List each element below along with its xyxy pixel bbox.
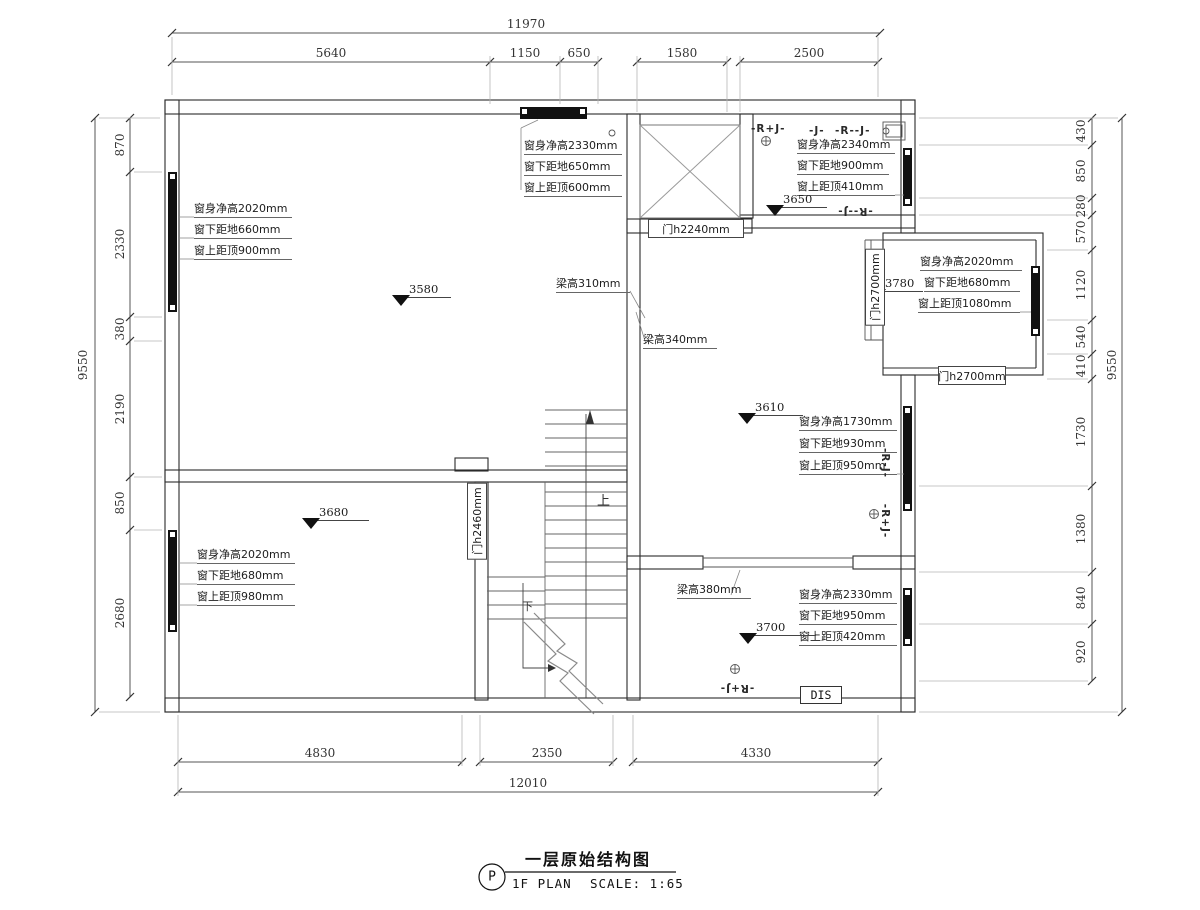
note-line: 窗身净高1730mm: [799, 415, 897, 431]
dim-bottom-total: 12010: [509, 776, 547, 790]
level-marker-entry: 3650: [770, 192, 827, 208]
floor-plan-canvas: 11970 5640 1150 650 1580 2500 9550 870 2…: [0, 0, 1200, 910]
level-triangle-icon: [738, 413, 756, 424]
drawing-scale-label: SCALE: 1:65: [590, 876, 684, 891]
dis-box: DIS: [800, 686, 842, 704]
beam-note-310: 梁高310mm: [556, 277, 630, 293]
stairs-up-label: 上: [597, 490, 610, 509]
tag-j: -J-: [809, 125, 825, 137]
dim-left-5: 2680: [113, 598, 127, 629]
note-line: 窗上距顶900mm: [194, 244, 292, 260]
dim-bottom-1: 2350: [532, 746, 563, 760]
level-marker-living: 3580: [396, 282, 451, 298]
tag-rj-plus-vertical: -R+J-: [879, 504, 891, 539]
dim-left-0: 870: [113, 134, 127, 157]
note-line: 窗身净高2020mm: [194, 202, 292, 218]
drawing-plan-label: 1F PLAN: [512, 876, 572, 891]
small-circle-icon: [609, 130, 615, 136]
level-value: 3780: [885, 276, 914, 290]
level-value: 3680: [319, 505, 348, 519]
level-value: 3650: [783, 192, 812, 206]
note-line: 窗下距地680mm: [197, 569, 295, 585]
tag-rj-dash-flipped: -R--J-: [837, 205, 872, 217]
floor-plan-linework: [0, 0, 1200, 910]
dim-right-10: 920: [1074, 641, 1088, 664]
level-triangle-icon: [302, 518, 320, 529]
dim-right-0: 430: [1074, 120, 1088, 143]
dim-right-3: 570: [1074, 221, 1088, 244]
level-triangle-icon: [739, 633, 757, 644]
door-label-text: 门h2700mm: [938, 368, 1005, 384]
tag-rj-dash: -R--J-: [835, 125, 870, 137]
level-triangle-icon: [766, 205, 784, 216]
dim-top-3: 1580: [667, 46, 698, 60]
level-value: 3610: [755, 400, 784, 414]
dim-top-0: 5640: [316, 46, 347, 60]
note-line: 窗身净高2020mm: [920, 255, 1022, 271]
dim-top-2: 650: [568, 46, 591, 60]
shaft-x-box: [640, 125, 740, 218]
level-marker-bottom-right: 3700: [743, 620, 816, 636]
note-line: 窗上距顶1080mm: [918, 297, 1020, 313]
stairs: [487, 410, 627, 698]
level-value: 3700: [756, 620, 785, 634]
tag-rj-plus: -R+J-: [751, 123, 786, 135]
note-line: 窗身净高2340mm: [797, 138, 895, 154]
note-line: 窗上距顶600mm: [524, 181, 622, 197]
note-line: 窗下距地680mm: [924, 276, 1020, 292]
dim-right-7: 1730: [1074, 417, 1088, 448]
level-triangle-icon: [392, 295, 410, 306]
note-line: 窗上距顶980mm: [197, 590, 295, 606]
note-line: 窗下距地650mm: [524, 160, 622, 176]
dim-bottom-0: 4830: [305, 746, 336, 760]
door-label-text: 门h2700mm: [869, 253, 882, 320]
tag-rj-vertical: -R-J-: [879, 448, 891, 478]
up-arrow-icon: [586, 410, 594, 424]
dim-left-1: 2330: [113, 229, 127, 260]
level-marker-right: 3610: [742, 400, 803, 416]
note-line: 窗身净高2020mm: [197, 548, 295, 564]
drawing-title: 一层原始结构图: [525, 846, 651, 870]
dim-right-total: 9550: [1105, 350, 1119, 381]
stair-arrows: [548, 410, 594, 672]
beam-note-340: 梁高340mm: [643, 333, 717, 349]
dim-top-4: 2500: [794, 46, 825, 60]
door-label-2700: 门h2700mm: [938, 366, 1006, 385]
dim-right-4: 1120: [1074, 270, 1088, 301]
level-marker-bottom-left: 3680: [306, 505, 369, 521]
dim-left-4: 850: [113, 492, 127, 515]
dim-left-2: 380: [113, 318, 127, 341]
note-line: 窗身净高2330mm: [799, 588, 897, 604]
door-label-text: 门h2240mm: [662, 221, 729, 237]
tag-rj-plus-flipped: -R+J-: [720, 682, 755, 694]
door-label-2700-vertical: 门h2700mm: [865, 248, 885, 325]
note-line: 窗下距地900mm: [797, 159, 889, 175]
door-label-text: 门h2460mm: [471, 487, 484, 554]
dim-right-9: 840: [1074, 587, 1088, 610]
title-block-tag: P: [488, 870, 496, 885]
dim-left-total: 9550: [76, 350, 90, 381]
note-line: 窗身净高2330mm: [524, 139, 622, 155]
dim-top-1: 1150: [510, 46, 541, 60]
dis-label: DIS: [811, 688, 832, 702]
dim-bottom-2: 4330: [741, 746, 772, 760]
stairs-down-label: 下: [522, 598, 533, 614]
beam-note-380: 梁高380mm: [677, 583, 751, 599]
door-label-2240: 门h2240mm: [648, 219, 744, 238]
stair-break-line: [524, 613, 603, 714]
dim-right-5: 540: [1074, 326, 1088, 349]
level-value: 3580: [409, 282, 438, 296]
note-line: 窗下距地660mm: [194, 223, 292, 239]
door-label-2460-vertical: 门h2460mm: [467, 482, 487, 559]
dim-top-total: 11970: [507, 17, 545, 31]
dim-right-6: 410: [1074, 355, 1088, 378]
dim-left-3: 2190: [113, 394, 127, 425]
dim-right-8: 1380: [1074, 514, 1088, 545]
dim-right-1: 850: [1074, 160, 1088, 183]
dim-right-2: 280: [1074, 195, 1088, 218]
